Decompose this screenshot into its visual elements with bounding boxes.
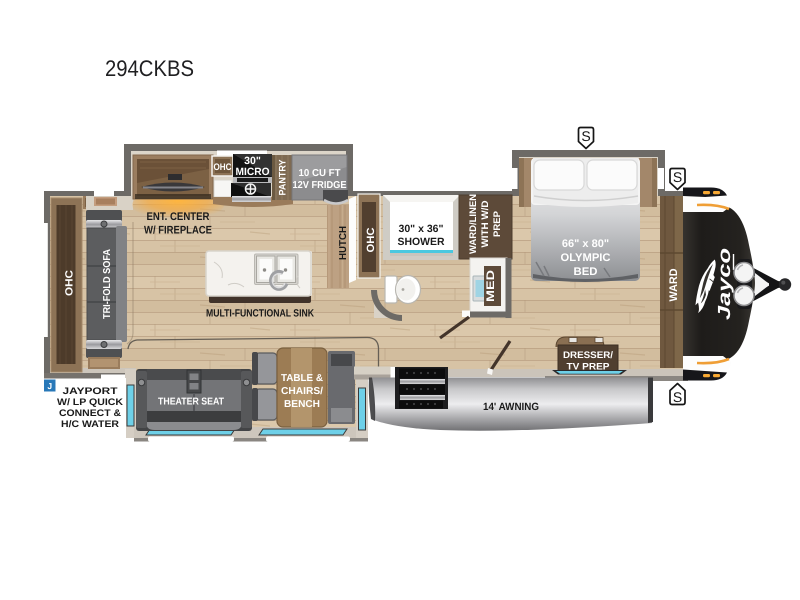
svg-text:14' AWNING: 14' AWNING	[483, 401, 539, 413]
svg-text:S: S	[673, 389, 682, 405]
svg-text:CHAIRS/: CHAIRS/	[281, 386, 323, 397]
svg-text:THEATER SEAT: THEATER SEAT	[158, 397, 224, 408]
svg-text:TABLE &: TABLE &	[281, 373, 323, 384]
svg-text:S: S	[673, 169, 682, 185]
svg-text:WARD: WARD	[668, 268, 680, 301]
svg-text:HUTCH: HUTCH	[338, 226, 349, 260]
svg-text:294CKBS: 294CKBS	[105, 56, 194, 81]
svg-text:BENCH: BENCH	[284, 399, 320, 410]
svg-text:PREP: PREP	[492, 210, 503, 237]
svg-text:MULTI-FUNCTIONAL SINK: MULTI-FUNCTIONAL SINK	[206, 308, 314, 320]
svg-text:J: J	[47, 381, 52, 391]
svg-text:OLYMPIC: OLYMPIC	[561, 252, 611, 264]
svg-text:12V FRIDGE: 12V FRIDGE	[293, 180, 347, 191]
svg-text:JAYPORT: JAYPORT	[63, 386, 118, 397]
svg-text:MED: MED	[485, 270, 497, 302]
svg-text:W/ LP QUICK: W/ LP QUICK	[57, 397, 123, 408]
svg-text:10 CU FT: 10 CU FT	[299, 168, 341, 179]
svg-text:66" x 80": 66" x 80"	[562, 238, 609, 250]
svg-text:DRESSER/: DRESSER/	[563, 350, 613, 361]
svg-text:BED: BED	[574, 266, 598, 278]
svg-text:WITH W/D: WITH W/D	[480, 200, 491, 247]
svg-text:W/ FIREPLACE: W/ FIREPLACE	[144, 225, 212, 237]
svg-text:H/C WATER: H/C WATER	[61, 419, 119, 430]
svg-text:TRI-FOLD SOFA: TRI-FOLD SOFA	[102, 249, 113, 319]
svg-text:OHC: OHC	[365, 227, 377, 252]
svg-text:S: S	[581, 128, 590, 144]
svg-text:WARD/LINEN: WARD/LINEN	[468, 194, 479, 254]
svg-text:OHC: OHC	[214, 162, 232, 173]
svg-text:SHOWER: SHOWER	[398, 236, 445, 248]
svg-text:OHC: OHC	[64, 270, 76, 296]
svg-text:CONNECT &: CONNECT &	[59, 408, 121, 419]
svg-text:MICRO: MICRO	[236, 166, 270, 178]
svg-text:Jayco: Jayco	[714, 248, 734, 320]
svg-text:PANTRY: PANTRY	[278, 159, 289, 196]
svg-text:30" x 36": 30" x 36"	[399, 223, 444, 235]
svg-text:ENT. CENTER: ENT. CENTER	[147, 211, 210, 223]
